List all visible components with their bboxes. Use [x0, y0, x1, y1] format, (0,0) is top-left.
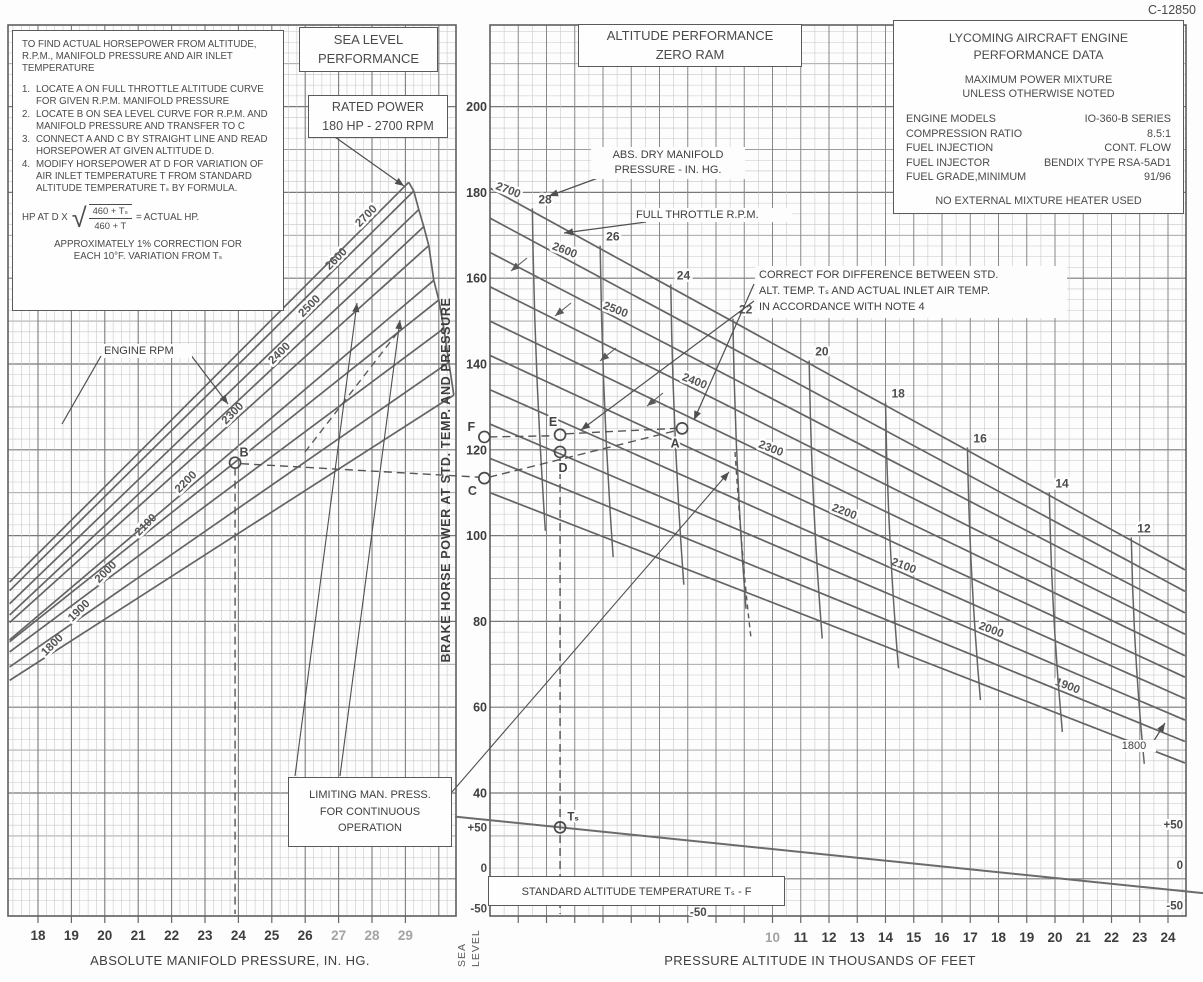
mixture-note: MAXIMUM POWER MIXTURE UNLESS OTHERWISE N… — [906, 73, 1171, 101]
spec-value: 8.5:1 — [1147, 127, 1171, 141]
svg-text:28: 28 — [538, 192, 552, 206]
title-line: PERFORMANCE — [300, 50, 437, 69]
label-line: PRESSURE - IN. HG. — [593, 163, 743, 178]
limiting-manifold-pressure-box: LIMITING MAN. PRESS. FOR CONTINUOUS OPER… — [288, 777, 452, 847]
step-text: LOCATE B ON SEA LEVEL CURVE FOR R.P.M. A… — [36, 109, 274, 133]
svg-text:-50: -50 — [690, 907, 707, 919]
formula-suffix: = ACTUAL HP. — [136, 212, 199, 224]
svg-text:E: E — [549, 415, 557, 429]
svg-text:13: 13 — [850, 930, 866, 945]
svg-text:C: C — [468, 484, 477, 498]
mixture-heater-note: NO EXTERNAL MIXTURE HEATER USED — [906, 195, 1171, 207]
engine-rpm-label: ENGINE RPM — [102, 344, 192, 358]
formula-fraction: 460 + Tₛ 460 + T — [89, 204, 132, 231]
fraction-denominator: 460 + T — [89, 219, 132, 232]
svg-text:19: 19 — [64, 928, 79, 943]
fraction-numerator: 460 + Tₛ — [89, 205, 132, 219]
rated-power-value: 180 HP - 2700 RPM — [309, 117, 447, 135]
performance-chart-page: 1800190020002100220023002400250026002700… — [0, 0, 1203, 982]
engine-data-title: LYCOMING AIRCRAFT ENGINE PERFORMANCE DAT… — [906, 30, 1171, 63]
spec-row: ENGINE MODELSIO-360-B SERIES — [906, 112, 1171, 126]
svg-text:29: 29 — [398, 928, 413, 943]
svg-text:18: 18 — [30, 928, 46, 943]
document-number: C-12850 — [1080, 3, 1196, 17]
note-line: ALT. TEMP. Tₛ AND ACTUAL INLET AIR TEMP. — [759, 284, 1063, 300]
instruction-step: 1. LOCATE A ON FULL THROTTLE ALTITUDE CU… — [22, 84, 274, 108]
label-line: LEVEL — [470, 911, 484, 967]
spec-value: IO-360-B SERIES — [1085, 112, 1171, 126]
full-throttle-rpm-label: FULL THROTTLE R.P.M. — [634, 208, 792, 222]
svg-text:14: 14 — [878, 930, 894, 945]
step-text: MODIFY HORSEPOWER AT D FOR VARIATION OF … — [36, 159, 274, 195]
svg-text:24: 24 — [231, 928, 247, 943]
spec-row: FUEL GRADE,MINIMUM91/96 — [906, 170, 1171, 184]
svg-text:F: F — [468, 420, 476, 434]
standard-altitude-temperature-box: STANDARD ALTITUDE TEMPERATURE Tₛ - F — [488, 876, 785, 906]
sea-level-performance-title: SEA LEVEL PERFORMANCE — [299, 27, 438, 72]
svg-text:26: 26 — [298, 928, 314, 943]
step-number: 2. — [22, 109, 36, 133]
svg-text:11: 11 — [794, 930, 809, 945]
spec-label: FUEL INJECTOR — [906, 156, 990, 170]
svg-text:1900: 1900 — [66, 598, 93, 625]
instructions-intro: TO FIND ACTUAL HORSEPOWER FROM ALTITUDE,… — [22, 39, 274, 75]
svg-text:Tₛ: Tₛ — [567, 811, 579, 823]
label-line: SEA — [456, 911, 470, 967]
label-line: FOR CONTINUOUS — [289, 804, 451, 821]
svg-text:18: 18 — [892, 386, 906, 400]
step-text: CONNECT A AND C BY STRAIGHT LINE AND REA… — [36, 134, 274, 158]
svg-text:14: 14 — [1055, 476, 1069, 490]
svg-text:120: 120 — [466, 443, 487, 457]
svg-text:140: 140 — [466, 358, 487, 372]
spec-label: COMPRESSION RATIO — [906, 127, 1022, 141]
svg-text:21: 21 — [1076, 930, 1092, 945]
note-line: APPROXIMATELY 1% CORRECTION FOR — [22, 239, 274, 252]
spec-label: ENGINE MODELS — [906, 112, 996, 126]
curve-1800-cut-label: 1800 — [1112, 740, 1156, 752]
note-line: MAXIMUM POWER MIXTURE — [906, 73, 1171, 87]
correction-formula: HP AT D X √ 460 + Tₛ 460 + T = ACTUAL HP… — [22, 204, 274, 231]
spec-label: FUEL GRADE,MINIMUM — [906, 170, 1026, 184]
svg-text:24: 24 — [677, 268, 691, 282]
svg-text:12: 12 — [821, 930, 836, 945]
step-number: 1. — [22, 84, 36, 108]
svg-text:22: 22 — [1104, 930, 1119, 945]
svg-text:16: 16 — [934, 930, 950, 945]
svg-text:22: 22 — [164, 928, 179, 943]
svg-text:+50: +50 — [1163, 820, 1183, 832]
svg-text:23: 23 — [197, 928, 213, 943]
label-line: OPERATION — [289, 820, 451, 837]
svg-text:26: 26 — [606, 230, 620, 244]
note-line: EACH 10°F. VARIATION FROM Tₛ — [22, 251, 274, 264]
svg-text:25: 25 — [264, 928, 280, 943]
y-axis-title: BRAKE HORSE POWER AT STD. TEMP. AND PRES… — [439, 245, 465, 715]
title-line: ALTITUDE PERFORMANCE — [579, 27, 801, 46]
svg-text:D: D — [559, 461, 568, 475]
engine-data-box: LYCOMING AIRCRAFT ENGINE PERFORMANCE DAT… — [893, 20, 1184, 214]
svg-text:20: 20 — [1047, 930, 1062, 945]
instruction-step: 3. CONNECT A AND C BY STRAIGHT LINE AND … — [22, 134, 274, 158]
altitude-performance-title: ALTITUDE PERFORMANCE ZERO RAM — [578, 24, 802, 67]
svg-text:80: 80 — [473, 615, 487, 629]
svg-text:21: 21 — [131, 928, 147, 943]
rated-power-box: RATED POWER 180 HP - 2700 RPM — [308, 95, 448, 138]
svg-text:B: B — [240, 446, 249, 460]
spec-row: FUEL INJECTIONCONT. FLOW — [906, 141, 1171, 155]
formula-prefix: HP AT D X — [22, 212, 68, 224]
note-line: IN ACCORDANCE WITH NOTE 4 — [759, 300, 1063, 316]
abs-dry-manifold-label: ABS. DRY MANIFOLD PRESSURE - IN. HG. — [591, 147, 745, 179]
title-line: LYCOMING AIRCRAFT ENGINE — [906, 30, 1171, 47]
instruction-step: 2. LOCATE B ON SEA LEVEL CURVE FOR R.P.M… — [22, 109, 274, 133]
svg-text:12: 12 — [1137, 521, 1151, 535]
instruction-step: 4. MODIFY HORSEPOWER AT D FOR VARIATION … — [22, 159, 274, 195]
note-line: CORRECT FOR DIFFERENCE BETWEEN STD. — [759, 268, 1063, 284]
spec-value: 91/96 — [1144, 170, 1171, 184]
spec-label: FUEL INJECTION — [906, 141, 993, 155]
svg-text:60: 60 — [473, 701, 487, 715]
svg-text:160: 160 — [466, 272, 487, 286]
temperature-correction-note: CORRECT FOR DIFFERENCE BETWEEN STD. ALT.… — [755, 266, 1067, 318]
sea-level-axis-label: SEA LEVEL — [456, 911, 490, 967]
right-x-axis-title: PRESSURE ALTITUDE IN THOUSANDS OF FEET — [600, 953, 1040, 968]
step-number: 3. — [22, 134, 36, 158]
svg-text:20: 20 — [815, 344, 829, 358]
svg-text:15: 15 — [906, 930, 922, 945]
svg-text:40: 40 — [473, 787, 487, 801]
svg-text:24: 24 — [1160, 930, 1176, 945]
svg-text:18: 18 — [991, 930, 1007, 945]
svg-text:200: 200 — [466, 100, 487, 114]
svg-text:0: 0 — [481, 863, 487, 875]
label-line: ABS. DRY MANIFOLD — [593, 148, 743, 163]
svg-text:10: 10 — [765, 930, 780, 945]
svg-text:-50: -50 — [1166, 901, 1183, 913]
title-line: ZERO RAM — [579, 46, 801, 65]
spec-row: COMPRESSION RATIO8.5:1 — [906, 127, 1171, 141]
svg-text:28: 28 — [364, 928, 380, 943]
instructions-box: TO FIND ACTUAL HORSEPOWER FROM ALTITUDE,… — [12, 30, 284, 311]
radical-sign: √ — [72, 208, 87, 228]
svg-text:23: 23 — [1132, 930, 1148, 945]
svg-text:19: 19 — [1019, 930, 1034, 945]
svg-text:100: 100 — [466, 529, 487, 543]
left-x-axis-title: ABSOLUTE MANIFOLD PRESSURE, IN. HG. — [60, 953, 400, 968]
svg-text:16: 16 — [973, 431, 987, 445]
svg-text:20: 20 — [97, 928, 112, 943]
step-text: LOCATE A ON FULL THROTTLE ALTITUDE CURVE… — [36, 84, 274, 108]
step-number: 4. — [22, 159, 36, 195]
svg-text:1800: 1800 — [39, 632, 66, 659]
note-line: UNLESS OTHERWISE NOTED — [906, 87, 1171, 101]
spec-row: FUEL INJECTORBENDIX TYPE RSA-5AD1 — [906, 156, 1171, 170]
svg-text:17: 17 — [963, 930, 978, 945]
engine-specs: ENGINE MODELSIO-360-B SERIES COMPRESSION… — [906, 112, 1171, 184]
svg-text:27: 27 — [331, 928, 346, 943]
rated-power-line: RATED POWER — [309, 98, 447, 116]
title-line: SEA LEVEL — [300, 31, 437, 50]
svg-text:0: 0 — [1177, 860, 1183, 872]
title-line: PERFORMANCE DATA — [906, 47, 1171, 64]
spec-value: BENDIX TYPE RSA-5AD1 — [1044, 156, 1171, 170]
label-line: LIMITING MAN. PRESS. — [289, 787, 451, 804]
correction-note: APPROXIMATELY 1% CORRECTION FOR EACH 10°… — [22, 239, 274, 264]
svg-text:+50: +50 — [467, 823, 487, 835]
svg-text:180: 180 — [466, 186, 487, 200]
spec-value: CONT. FLOW — [1104, 141, 1171, 155]
svg-text:A: A — [671, 436, 680, 450]
